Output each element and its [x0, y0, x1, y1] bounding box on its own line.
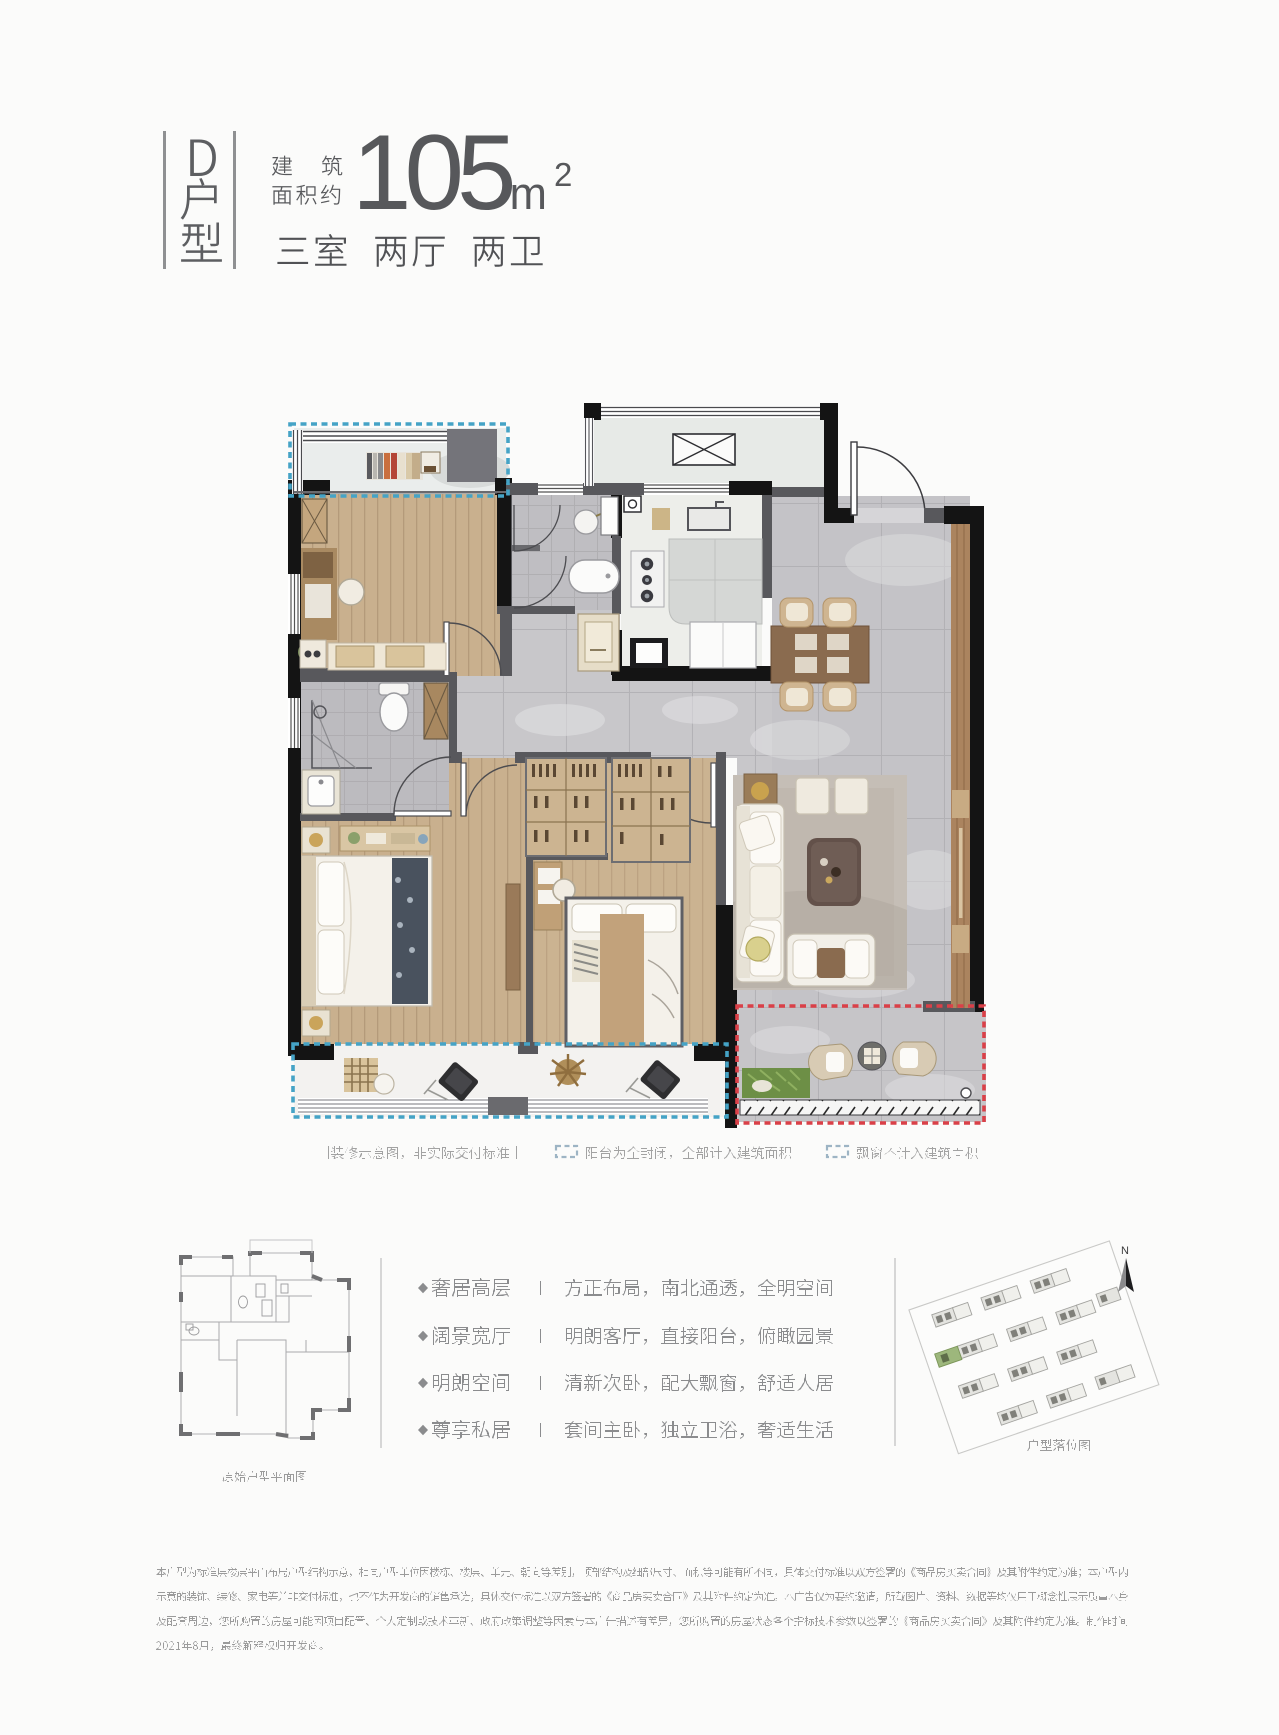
svg-text:N: N: [1121, 1245, 1129, 1257]
